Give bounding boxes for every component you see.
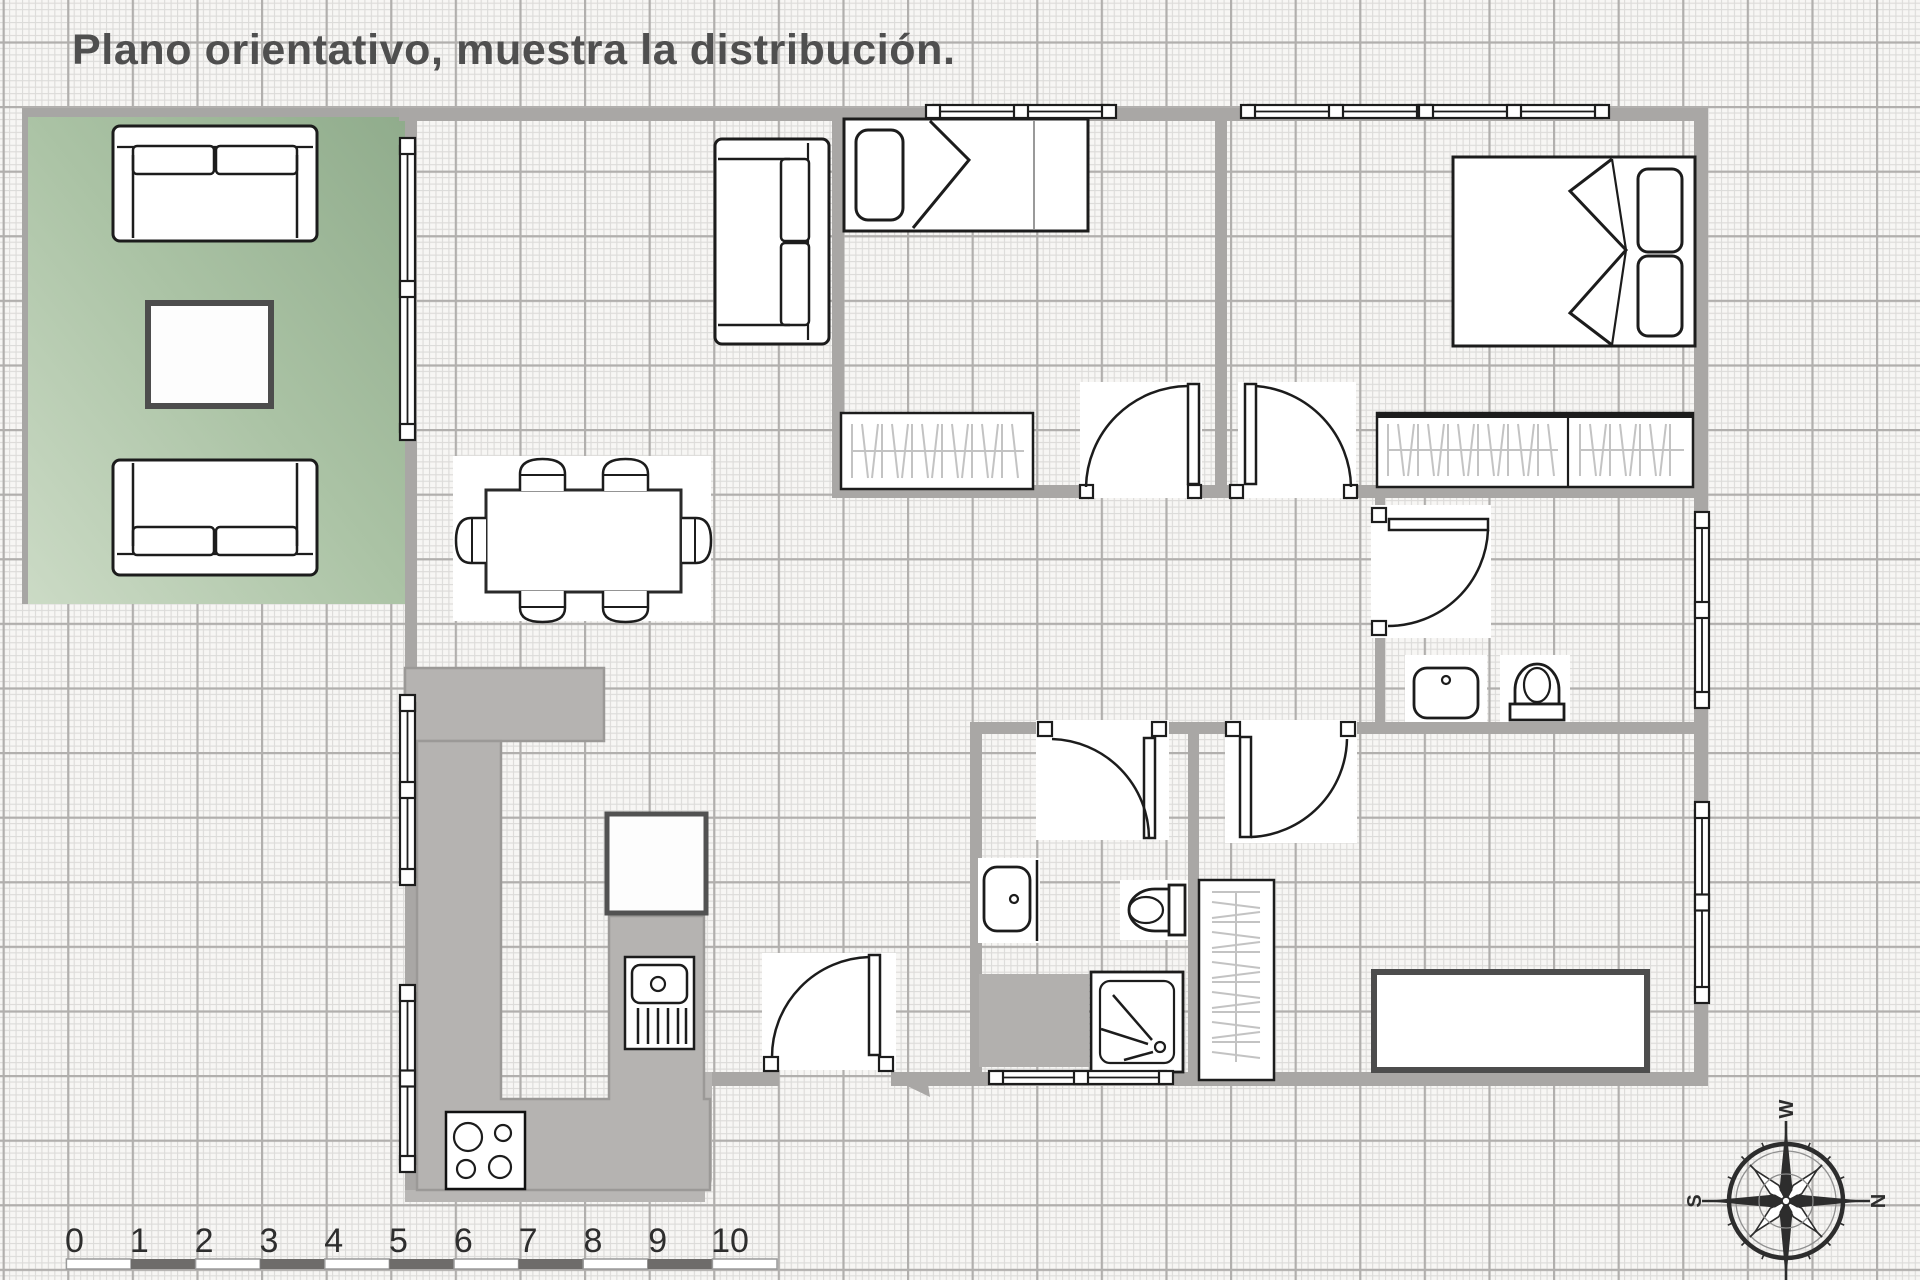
svg-text:N: N — [1868, 1194, 1890, 1208]
svg-text:0: 0 — [65, 1222, 84, 1260]
svg-text:4: 4 — [324, 1222, 343, 1260]
svg-text:9: 9 — [648, 1222, 667, 1260]
svg-text:1: 1 — [130, 1222, 149, 1260]
svg-text:10: 10 — [711, 1222, 749, 1260]
svg-text:5: 5 — [389, 1222, 408, 1260]
svg-text:Plano orientativo, muestra la: Plano orientativo, muestra la distribuci… — [72, 26, 956, 74]
svg-text:W: W — [1776, 1099, 1798, 1118]
svg-text:S: S — [1684, 1194, 1706, 1207]
svg-text:7: 7 — [519, 1222, 538, 1260]
svg-text:3: 3 — [259, 1222, 278, 1260]
svg-text:2: 2 — [195, 1222, 214, 1260]
svg-text:8: 8 — [583, 1222, 602, 1260]
svg-text:6: 6 — [454, 1222, 473, 1260]
